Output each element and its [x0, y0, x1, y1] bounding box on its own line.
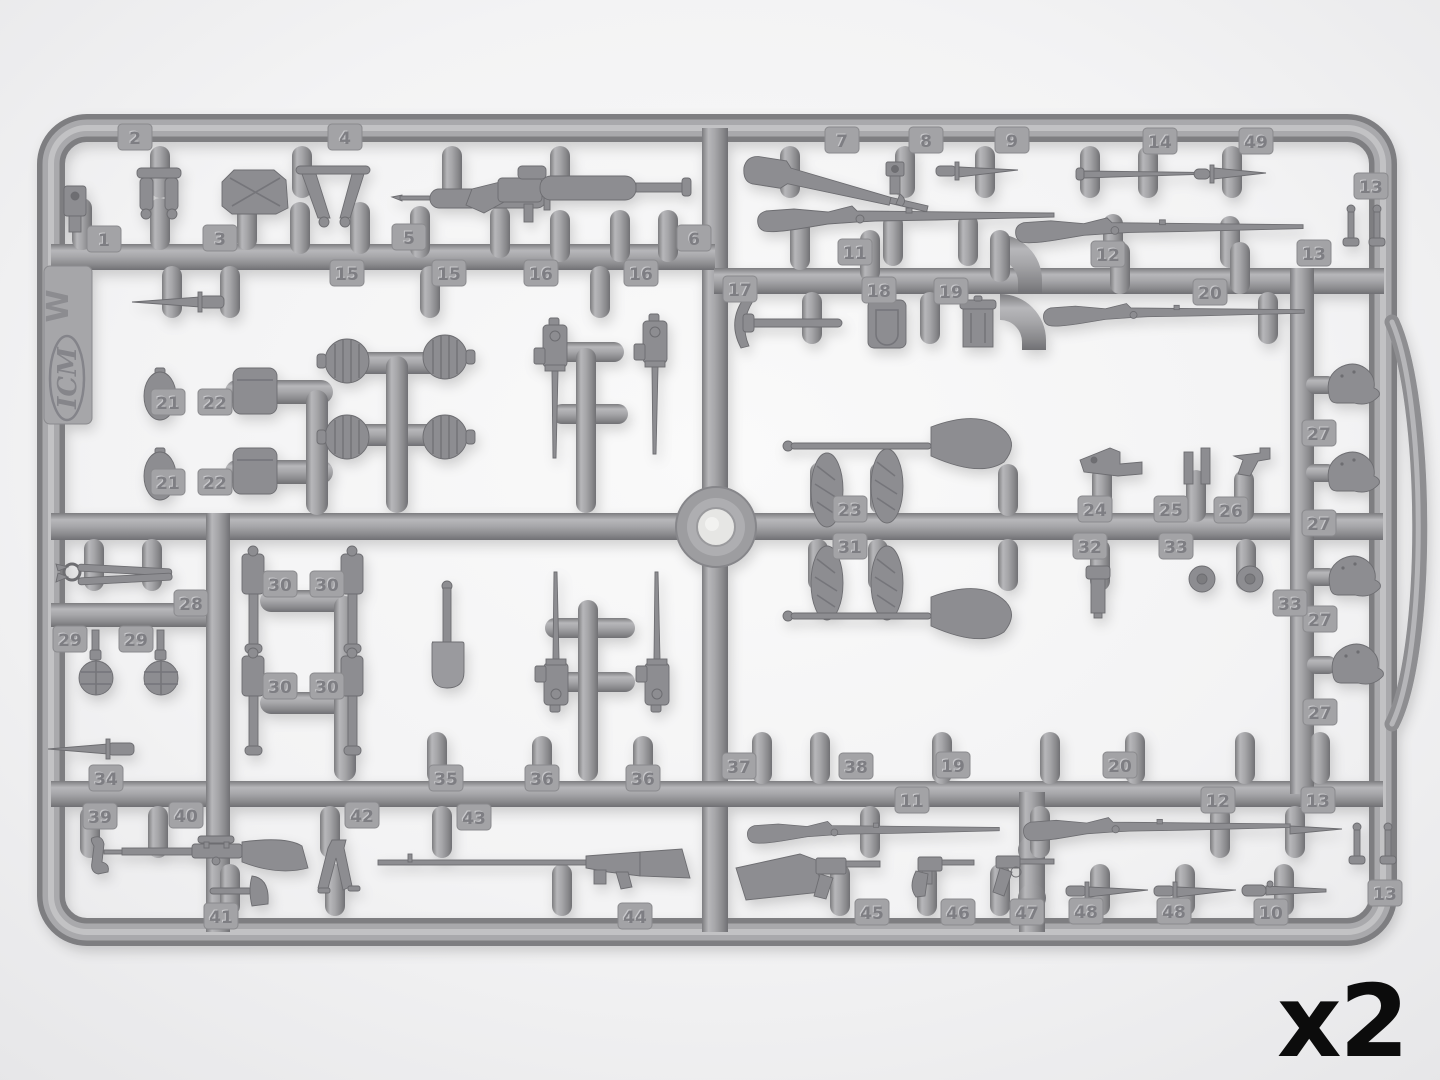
part-number-tag: 45 — [860, 904, 884, 924]
folding-mount-part — [296, 166, 370, 174]
mold-letter: W — [41, 289, 76, 322]
part-number-tag: 43 — [462, 809, 486, 829]
part-number-tag: 5 — [403, 229, 415, 249]
part-number-tag: 48 — [1162, 903, 1186, 923]
sprue-illustration: W ICM 2244113355661515151516161616778899… — [0, 0, 1440, 1080]
ammo-pouch-part — [868, 300, 906, 348]
part-number-tag: 27 — [1308, 704, 1332, 724]
part-number-tag: 2626 — [1214, 497, 1248, 523]
part-number-tag: 32 — [1078, 538, 1102, 558]
part-number-tag: 4848 — [1069, 898, 1103, 924]
entrenching-shovel-part — [443, 588, 451, 642]
part-number-tag: 1717 — [723, 276, 757, 302]
sprue-pegs — [142, 539, 162, 591]
part-number-tag: 2727 — [1302, 510, 1336, 536]
part-number-tag: 11 — [900, 792, 924, 812]
hatchet-part — [210, 888, 252, 894]
injection-hub — [705, 517, 719, 531]
mess-cup-part — [233, 448, 277, 494]
part-number-tag: 20 — [1198, 284, 1222, 304]
binoculars-part — [137, 168, 181, 178]
part-number-tag: 3030 — [310, 571, 344, 597]
sprue-pegs — [802, 292, 822, 344]
part-number-tag: 4343 — [457, 804, 491, 830]
part-number-tag: 15 — [335, 265, 359, 285]
bayonet-part — [200, 296, 224, 308]
ball-grenade-part — [90, 650, 101, 660]
part-number-tag: 1212 — [1091, 241, 1125, 267]
part-number-tag: 66 — [677, 225, 711, 251]
runner-lower — [51, 781, 1383, 807]
part-number-tag: 2222 — [198, 469, 232, 495]
part-number-tag: 3030 — [310, 673, 344, 699]
sprue-pegs — [1040, 732, 1060, 784]
sprue-pegs — [550, 210, 570, 262]
part-number-tag: 1313 — [1301, 787, 1335, 813]
part-number-tag: 3939 — [83, 803, 117, 829]
trench-periscope-part — [69, 216, 81, 232]
part-number-tag: 42 — [350, 807, 374, 827]
part-number-tag: 2727 — [1303, 606, 1337, 632]
part-number-tag: 4444 — [618, 903, 652, 929]
sprue-pegs — [990, 230, 1010, 282]
part-number-tag: 1111 — [838, 239, 872, 265]
antitank-rifle-part — [408, 854, 412, 862]
part-number-tag: 2727 — [1303, 699, 1337, 725]
part-number-tag: 12 — [1206, 792, 1230, 812]
part-number-tag: 7 — [836, 132, 848, 152]
mess-cup-part — [233, 448, 277, 494]
quantity-label: x2 — [1277, 963, 1407, 1080]
part-number-tag: 36 — [530, 770, 554, 790]
c96-stock-pistol-part — [846, 861, 880, 867]
part-number-tag: 40 — [174, 807, 198, 827]
part-number-tag: 4949 — [1239, 128, 1273, 154]
part-number-tag: 1616 — [524, 260, 558, 286]
part-number-tag: 2 — [129, 129, 141, 149]
part-number-tag: 3737 — [722, 753, 756, 779]
mess-cup-part — [233, 368, 277, 414]
scabbard-bayonet-part — [1267, 881, 1273, 887]
part-number-tag: 1616 — [624, 260, 658, 286]
map-case-part — [222, 170, 288, 214]
part-number-tag: 1919 — [934, 278, 968, 304]
trench-periscope-part — [64, 186, 86, 216]
sprue-pegs — [883, 214, 903, 266]
part-number-tag: 2828 — [174, 590, 208, 616]
sprue-pegs — [1310, 732, 1330, 784]
sniper-rifle-part — [104, 850, 124, 854]
lewis-gun-part — [498, 178, 542, 202]
sprue-pegs — [490, 206, 510, 258]
part-number-tag: 1818 — [862, 277, 896, 303]
part-number-tag: 29 — [58, 631, 82, 651]
part-number-tag: 27 — [1307, 425, 1331, 445]
entrenching-shovel-part — [432, 642, 464, 688]
part-number-tag: 13 — [1306, 792, 1330, 812]
barrel-tube-part — [400, 196, 430, 200]
part-number-tag: 13 — [1359, 178, 1383, 198]
part-number-tag: 2020 — [1103, 752, 1137, 778]
part-number-tag: 2222 — [198, 389, 232, 415]
part-number-tag: 33 — [1278, 595, 1302, 615]
part-number-tag: 16 — [629, 265, 653, 285]
c96-pistol-part — [940, 860, 974, 865]
part-number-tag: 3232 — [1073, 533, 1107, 559]
sprue-pegs — [658, 210, 678, 262]
part-number-tag: 35 — [434, 770, 458, 790]
part-number-tag: 9 — [1006, 132, 1018, 152]
lewis-gun-part — [518, 166, 546, 179]
part-number-tag: 3838 — [839, 753, 873, 779]
part-number-tag: 8 — [920, 132, 932, 152]
part-number-tag: 4747 — [1010, 899, 1044, 925]
part-number-tag: 49 — [1244, 133, 1268, 153]
runner-right-upper — [714, 268, 1384, 294]
sprue-runners — [306, 390, 328, 515]
part-number-tag: 24 — [1083, 501, 1107, 521]
part-number-tag: 21 — [156, 394, 180, 414]
part-number-tag: 34 — [94, 770, 118, 790]
part-number-tag: 19 — [941, 757, 965, 777]
part-number-tag: 1 — [98, 231, 110, 251]
part-number-tag: 2727 — [1302, 420, 1336, 446]
sprue-pegs — [290, 202, 310, 254]
sprue-pegs — [162, 266, 182, 318]
sniper-rifle-part — [204, 842, 209, 848]
part-number-tag: 29 — [124, 631, 148, 651]
part-number-tag: 22 — [203, 474, 227, 494]
part-number-tag: 1414 — [1143, 128, 1177, 154]
part-number-tag: 13 — [1302, 245, 1326, 265]
part-number-tag: 30 — [315, 678, 339, 698]
part-number-tag: 1111 — [895, 787, 929, 813]
sprue-pegs — [1235, 732, 1255, 784]
part-number-tag: 11 — [843, 244, 867, 264]
part-number-tag: 1212 — [1201, 787, 1235, 813]
lewis-gun-part — [682, 178, 691, 196]
part-number-tag: 30 — [268, 576, 292, 596]
small-bars-part — [1184, 452, 1193, 484]
part-number-tag: 4 — [339, 129, 351, 149]
part-number-tag: 3333 — [1159, 533, 1193, 559]
brand-plate: W ICM — [41, 266, 92, 424]
part-number-tag: 55 — [392, 224, 426, 250]
sprue-runners — [578, 600, 598, 781]
part-number-tag: 22 — [118, 124, 152, 150]
part-number-tag: 31 — [838, 538, 862, 558]
part-number-tag: 3333 — [1273, 590, 1307, 616]
part-number-tag: 3535 — [429, 765, 463, 791]
sniper-rifle-part — [192, 844, 242, 858]
part-number-tag: 46 — [946, 904, 970, 924]
icm-logo: ICM — [53, 346, 83, 410]
luger-pistol-part — [996, 856, 1020, 868]
bipod-part — [318, 888, 330, 893]
sprue-photo: W ICM 2244113355661515151516161616778899… — [0, 0, 1440, 1080]
part-number-tag: 2121 — [151, 469, 185, 495]
part-number-tag: 6 — [688, 230, 700, 250]
part-number-tag: 3636 — [525, 765, 559, 791]
part-number-tag: 19 — [939, 283, 963, 303]
part-number-tag: 4141 — [204, 903, 238, 929]
lewis-gun-part — [540, 176, 636, 200]
part-number-tag: 23 — [838, 501, 862, 521]
part-number-tag: 44 — [623, 908, 647, 928]
part-number-tag: 21 — [156, 474, 180, 494]
lewis-gun-part — [636, 183, 682, 192]
canteen-part — [871, 546, 903, 620]
sprue-pegs — [1258, 292, 1278, 344]
flashlight-part — [1091, 579, 1105, 613]
epee-blade-part — [1076, 168, 1084, 180]
part-number-tag: 44 — [328, 124, 362, 150]
dagger-part — [1210, 165, 1214, 183]
bayonet-part — [198, 292, 202, 312]
canteen-part — [871, 449, 903, 523]
sprue-pegs — [998, 539, 1018, 591]
ball-grenade-part — [157, 630, 164, 652]
c96-pistol-part — [912, 871, 928, 897]
part-number-tag: 99 — [995, 127, 1029, 153]
part-number-tag: 39 — [88, 808, 112, 828]
binoculars-part — [141, 209, 151, 219]
part-number-tag: 17 — [728, 281, 752, 301]
part-number-tag: 2121 — [151, 389, 185, 415]
folding-mount-part — [319, 217, 329, 227]
sprue-pegs — [552, 864, 572, 916]
flashlight-part — [1086, 566, 1110, 579]
part-number-tag: 3030 — [263, 673, 297, 699]
part-number-tag: 3131 — [833, 533, 867, 559]
part-number-tag: 1313 — [1354, 173, 1388, 199]
sprue-pegs — [1230, 242, 1250, 294]
c96-stock-pistol-part — [816, 858, 846, 874]
antitank-rifle-part — [594, 870, 606, 884]
part-number-tag: 12 — [1096, 246, 1120, 266]
injection-hub — [676, 487, 756, 567]
clamp-part — [890, 176, 900, 194]
part-number-tag: 2929 — [119, 626, 153, 652]
lid-parts — [1245, 574, 1255, 584]
part-number-tag: 3030 — [263, 571, 297, 597]
part-number-tag: 1515 — [330, 260, 364, 286]
sprue-pegs — [1210, 806, 1230, 858]
binoculars-part — [165, 178, 178, 210]
part-number-tag: 2929 — [53, 626, 87, 652]
lewis-gun-part — [524, 204, 533, 222]
part-number-tag: 1515 — [432, 260, 466, 286]
part-number-tag: 38 — [844, 758, 868, 778]
binoculars-part — [140, 178, 153, 210]
ammo-pouch-part — [868, 300, 906, 348]
sprue-pegs — [998, 464, 1018, 516]
part-number-tag: 88 — [909, 127, 943, 153]
part-number-tag: 4848 — [1157, 898, 1191, 924]
luger-pistol-part — [1018, 859, 1054, 864]
part-number-tag: 3 — [214, 230, 226, 250]
trench-periscope-part — [71, 192, 79, 200]
part-number-tag: 14 — [1148, 133, 1172, 153]
part-number-tag: 4646 — [941, 899, 975, 925]
flashlight-part — [1094, 613, 1102, 618]
sprue-runners — [576, 348, 596, 513]
part-number-tag: 10 — [1259, 904, 1283, 924]
part-number-tag: 33 — [203, 225, 237, 251]
sprue-runners — [386, 356, 408, 513]
c96-pistol-part — [918, 857, 942, 871]
part-number-tag: 30 — [315, 576, 339, 596]
part-number-tag: 47 — [1015, 904, 1039, 924]
part-number-tag: 2424 — [1078, 496, 1112, 522]
part-number-tag: 4545 — [855, 899, 889, 925]
knife-part — [108, 743, 134, 755]
part-number-tag: 3434 — [89, 765, 123, 791]
part-number-tag: 4040 — [169, 802, 203, 828]
ball-grenade-part — [92, 630, 99, 652]
binoculars-part — [167, 209, 177, 219]
part-number-tag: 2020 — [1193, 279, 1227, 305]
part-number-tag: 30 — [268, 678, 292, 698]
lid-parts — [1197, 574, 1207, 584]
part-number-tag: 28 — [179, 595, 203, 615]
part-number-tag: 48 — [1074, 903, 1098, 923]
part-number-tag: 41 — [209, 908, 233, 928]
mess-cup-part — [233, 368, 277, 414]
sniper-rifle-part — [212, 857, 220, 865]
part-number-tag: 4242 — [345, 802, 379, 828]
dagger-part — [1194, 169, 1210, 179]
bipod-part — [348, 886, 360, 891]
part-number-tag: 27 — [1307, 515, 1331, 535]
part-number-tag: 37 — [727, 758, 751, 778]
part-number-tag: 3636 — [626, 765, 660, 791]
small-bars-part — [1201, 448, 1210, 484]
part-number-tag: 20 — [1108, 757, 1132, 777]
part-number-tag: 2525 — [1154, 496, 1188, 522]
ball-grenade-part — [155, 650, 166, 660]
part-number-tag: 26 — [1219, 502, 1243, 522]
part-number-tag: 36 — [631, 770, 655, 790]
sprue-pegs — [220, 266, 240, 318]
sprue-pegs — [590, 266, 610, 318]
part-number-tag: 27 — [1308, 611, 1332, 631]
flare-device-part — [1091, 457, 1097, 463]
part-number-tag: 11 — [87, 226, 121, 252]
scabbard-bayonet-part — [1242, 885, 1266, 896]
part-number-tag: 18 — [867, 282, 891, 302]
part-number-tag: 33 — [1164, 538, 1188, 558]
antitank-rifle-part — [640, 849, 690, 878]
clamp-part — [892, 166, 899, 173]
part-number-tag: 1010 — [1254, 899, 1288, 925]
part-number-tag: 77 — [825, 127, 859, 153]
part-number-tag: 2323 — [833, 496, 867, 522]
part-number-tag: 16 — [529, 265, 553, 285]
part-number-tag: 22 — [203, 394, 227, 414]
sprue-pegs — [432, 806, 452, 858]
part-number-tag: 25 — [1159, 501, 1183, 521]
sprue-pegs — [958, 214, 978, 266]
part-number-tag: 1313 — [1297, 240, 1331, 266]
part-number-tag: 13 — [1373, 885, 1397, 905]
part-number-tag: 15 — [437, 265, 461, 285]
folding-mount-part — [340, 217, 350, 227]
knife-part — [106, 739, 110, 759]
sniper-rifle-part — [224, 842, 229, 848]
sniper-rifle-part — [122, 848, 192, 855]
sprue-pegs — [610, 210, 630, 262]
brand-plate: ICM — [50, 336, 84, 420]
sprue-pegs — [810, 732, 830, 784]
part-number-tag: 1313 — [1368, 880, 1402, 906]
part-number-tag: 1919 — [936, 752, 970, 778]
